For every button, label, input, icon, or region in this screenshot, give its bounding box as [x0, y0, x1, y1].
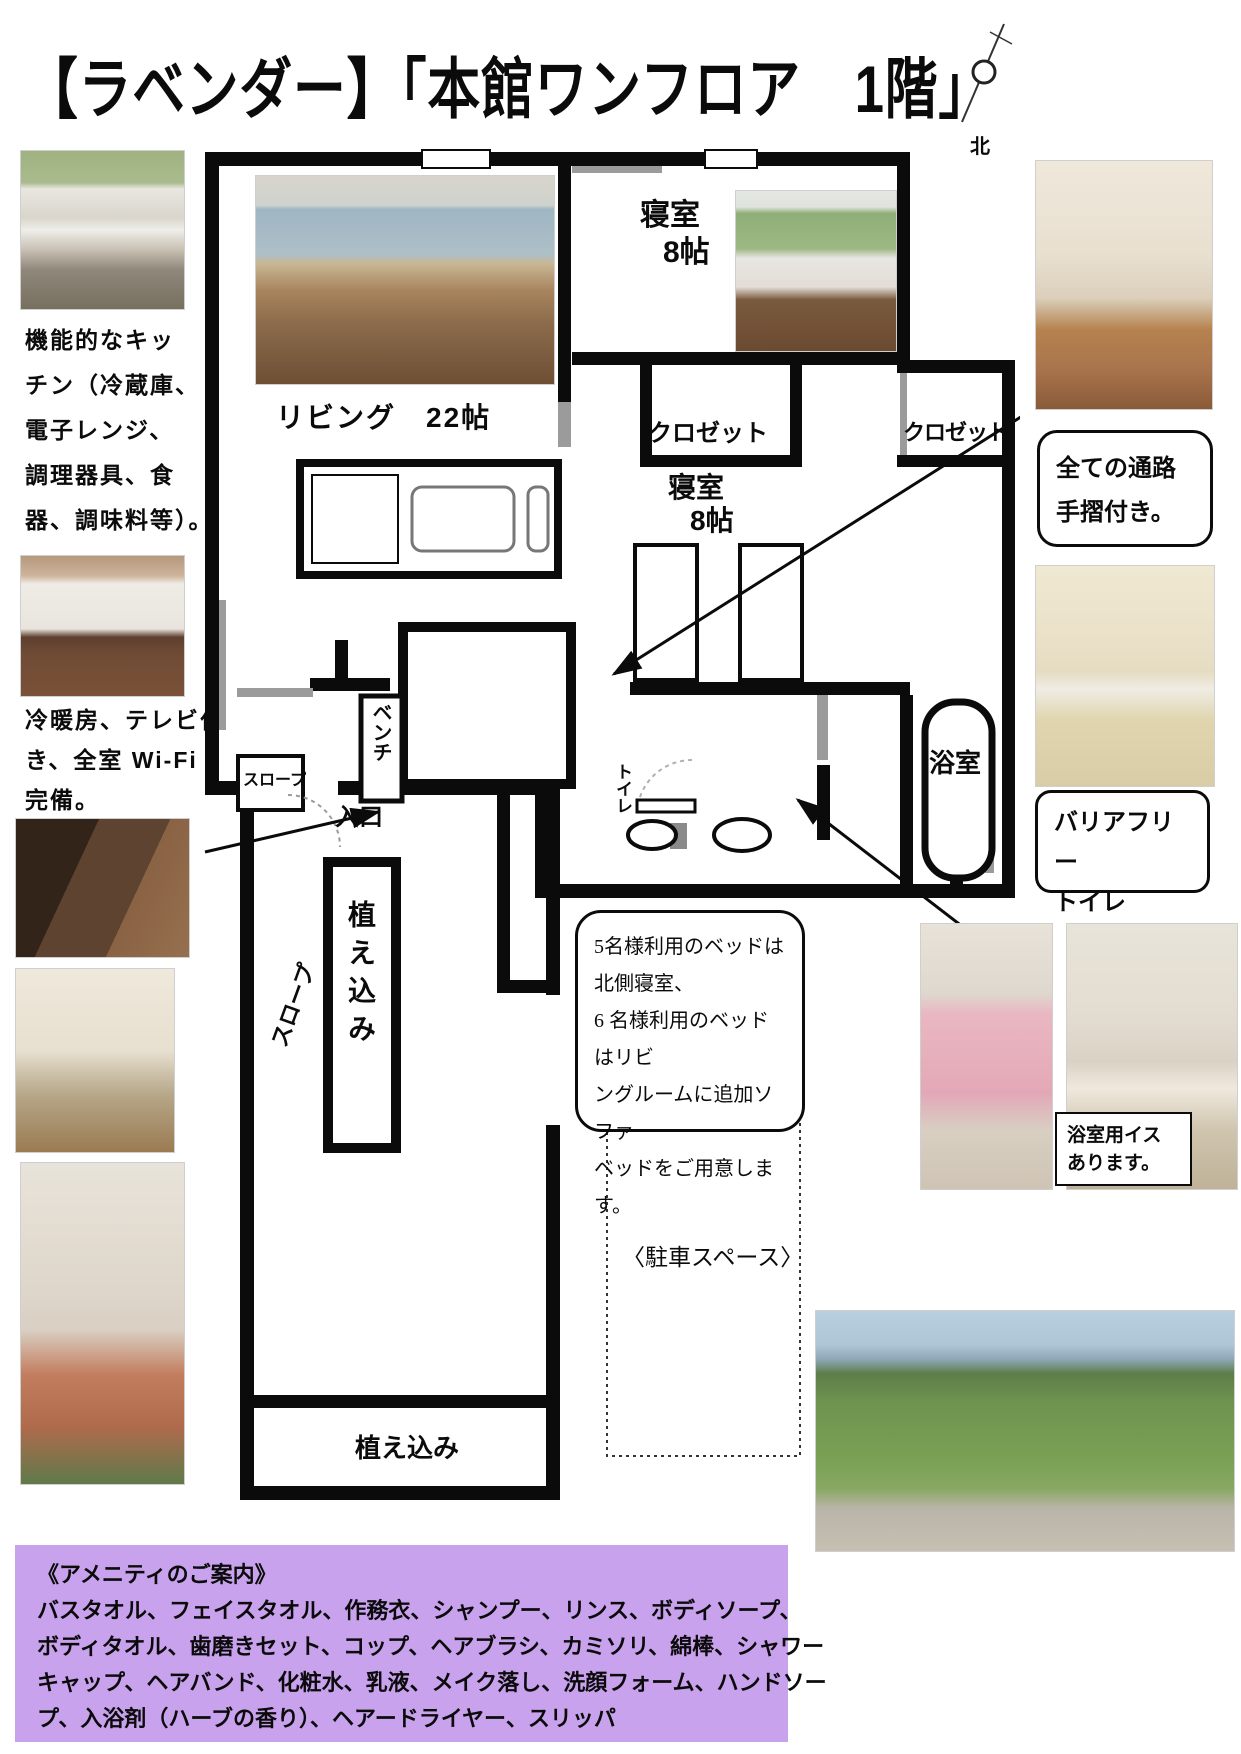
label-toilet: トイレ	[610, 763, 635, 814]
label-closet-left: クロゼット	[648, 413, 768, 448]
living-photo	[255, 175, 555, 385]
hallway-photo-left	[15, 968, 175, 1153]
kitchen-note: 機能的なキッ チン（冷蔵庫、 電子レンジ、 調理器具、食 器、調味料等）。	[25, 318, 214, 543]
label-bench: ベンチ	[366, 702, 395, 762]
entrance-photo	[20, 1162, 185, 1485]
bed-info-callout: 5名様利用のベッドは 北側寝室、 6 名様利用のベッドはリビ ングルームに追加ソ…	[575, 910, 805, 1132]
amenities-line: バスタオル、フェイスタオル、作務衣、シャンプー、リンス、ボディソープ、	[37, 1593, 766, 1629]
room-note: 冷暖房、テレビ付 き、全室 Wi-Fi 完備。	[25, 700, 225, 820]
label-bath: 浴室	[929, 743, 981, 780]
bedroom-photo-plan	[735, 190, 897, 352]
label-bedroom-south-size: 8帖	[690, 499, 734, 539]
flyer-page: 【ラベンダー】「本館ワンフロア 1階」 北 機能的なキッ チン（冷蔵庫、 電子レ…	[0, 0, 1241, 1754]
label-entrance: 入口	[335, 797, 383, 832]
amenities-box: 《アメニティのご案内》 バスタオル、フェイスタオル、作務衣、シャンプー、リンス、…	[15, 1545, 788, 1742]
label-planting-tall: 植え込み	[340, 900, 380, 1052]
label-slope-box: スロープ	[243, 766, 306, 790]
amenities-heading: 《アメニティのご案内》	[37, 1557, 766, 1593]
kitchen-photo	[20, 150, 185, 310]
amenities-line: プ、入浴剤（ハーブの香り）、ヘアードライヤー、スリッパ	[37, 1701, 766, 1737]
label-closet-right: クロゼット	[903, 415, 1008, 447]
label-parking: 〈駐車スペース〉	[622, 1238, 803, 1272]
barrier-free-callout: バリアフリー トイレ	[1035, 790, 1210, 893]
page-title: 【ラベンダー】「本館ワンフロア 1階」	[25, 36, 992, 132]
pink-bath-photo	[920, 923, 1053, 1190]
amenities-line: ボディタオル、歯磨きセット、コップ、ヘアブラシ、カミソリ、綿棒、シャワー	[37, 1629, 766, 1665]
label-bedroom-north-size: 8帖	[663, 227, 710, 271]
hallway-photo-right	[1035, 160, 1213, 410]
label-living: リビング 22帖	[276, 396, 491, 436]
garden-photo	[815, 1310, 1235, 1552]
bath-chair-callout: 浴室用イス あります。	[1055, 1112, 1192, 1186]
ramp-photo	[15, 818, 190, 958]
accessible-toilet-photo	[1035, 565, 1215, 787]
label-planting-bottom: 植え込み	[355, 1428, 459, 1465]
amenities-line: キャップ、ヘアバンド、化粧水、乳液、メイク落し、洗顔フォーム、ハンドソー	[37, 1665, 766, 1701]
handrail-callout: 全ての通路 手摺付き。	[1037, 430, 1213, 547]
bedroom-photo-left	[20, 555, 185, 697]
compass-icon	[940, 18, 1032, 138]
